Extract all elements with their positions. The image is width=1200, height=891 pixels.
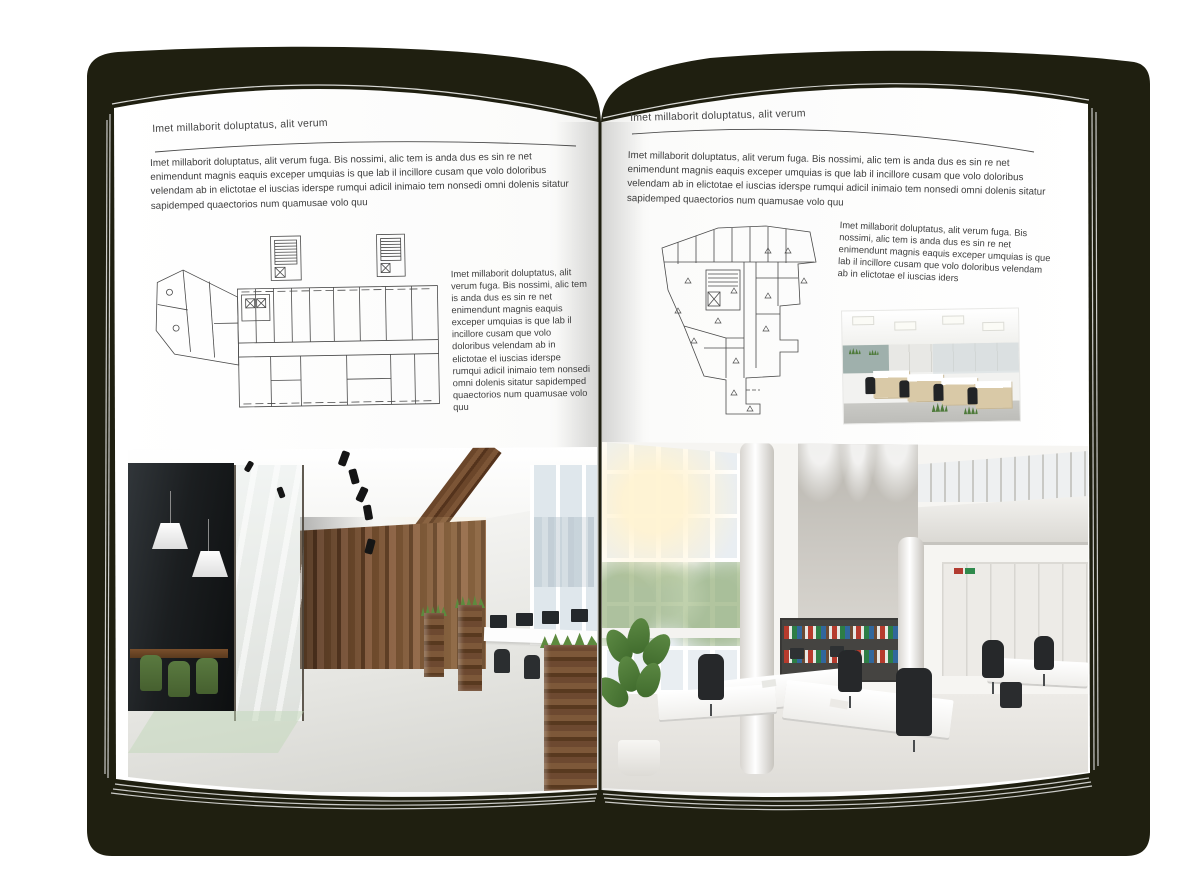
black-bin (1000, 682, 1022, 708)
office-window-band (843, 345, 889, 374)
floor-reflection-green (128, 711, 304, 753)
wood-planter-box (544, 645, 597, 791)
safety-sign-red (954, 568, 963, 574)
pendant-lamp-stem (170, 491, 171, 525)
black-office-chair (865, 377, 875, 394)
black-office-chair (899, 380, 909, 397)
desktop-monitor (571, 609, 588, 622)
green-office-chair (168, 661, 190, 697)
wood-planter-box (458, 605, 482, 691)
dark-glass-meeting-room (128, 463, 234, 711)
green-office-chair (140, 655, 162, 691)
desktop-monitor (790, 648, 804, 659)
black-office-chair (1034, 636, 1054, 670)
photo-loft-office-interior (128, 447, 597, 811)
black-office-chair (524, 655, 540, 679)
workstation-cubicle (975, 381, 1011, 409)
desktop-monitor (542, 611, 559, 624)
black-office-chair (698, 654, 724, 700)
white-plant-pot (618, 740, 660, 776)
black-office-chair (933, 384, 943, 401)
right-floorplan-caption: Imet millaborit doluptatus, alit verum f… (837, 219, 1051, 289)
floor-plan-left-drawing (148, 227, 449, 416)
pendant-lamp (152, 523, 188, 549)
black-office-chair (838, 650, 862, 692)
binder-row (784, 626, 914, 639)
pendant-lamp (192, 551, 228, 577)
exit-sign-green (965, 568, 975, 574)
black-office-chair (494, 649, 510, 673)
floor-plan-right (648, 218, 840, 418)
floor-plan-left (148, 227, 449, 416)
desktop-monitor (516, 613, 533, 626)
black-office-chair (967, 387, 977, 404)
ceiling-light-panel (982, 322, 1004, 331)
left-floorplan-caption: Imet millaborit doluptatus, alit verum f… (451, 266, 592, 413)
glass-partition-band (933, 342, 1020, 373)
green-office-chair (196, 658, 218, 694)
white-column (740, 442, 774, 774)
wood-planter-box (424, 613, 444, 677)
ceiling-light-panel (942, 315, 964, 324)
photo-open-plan-office-small (842, 308, 1020, 423)
ceiling-light-panel (894, 321, 916, 330)
ceiling-light-panel (852, 316, 874, 325)
city-silhouette (534, 517, 594, 587)
pendant-lamp-stem (208, 519, 209, 553)
photo-atrium-office-interior (602, 442, 1088, 810)
right-page-intro-paragraph: Imet millaborit doluptatus, alit verum f… (627, 149, 1058, 215)
glass-partition (234, 465, 304, 721)
left-page-intro-paragraph: Imet millaborit doluptatus, alit verum f… (150, 149, 581, 213)
magazine-mockup-stage: Imet millaborit doluptatus, alit verum I… (0, 0, 1200, 891)
floor-plan-right-drawing (648, 218, 840, 418)
black-office-chair (896, 668, 932, 736)
desktop-monitor (490, 615, 507, 628)
black-office-chair (982, 640, 1004, 678)
